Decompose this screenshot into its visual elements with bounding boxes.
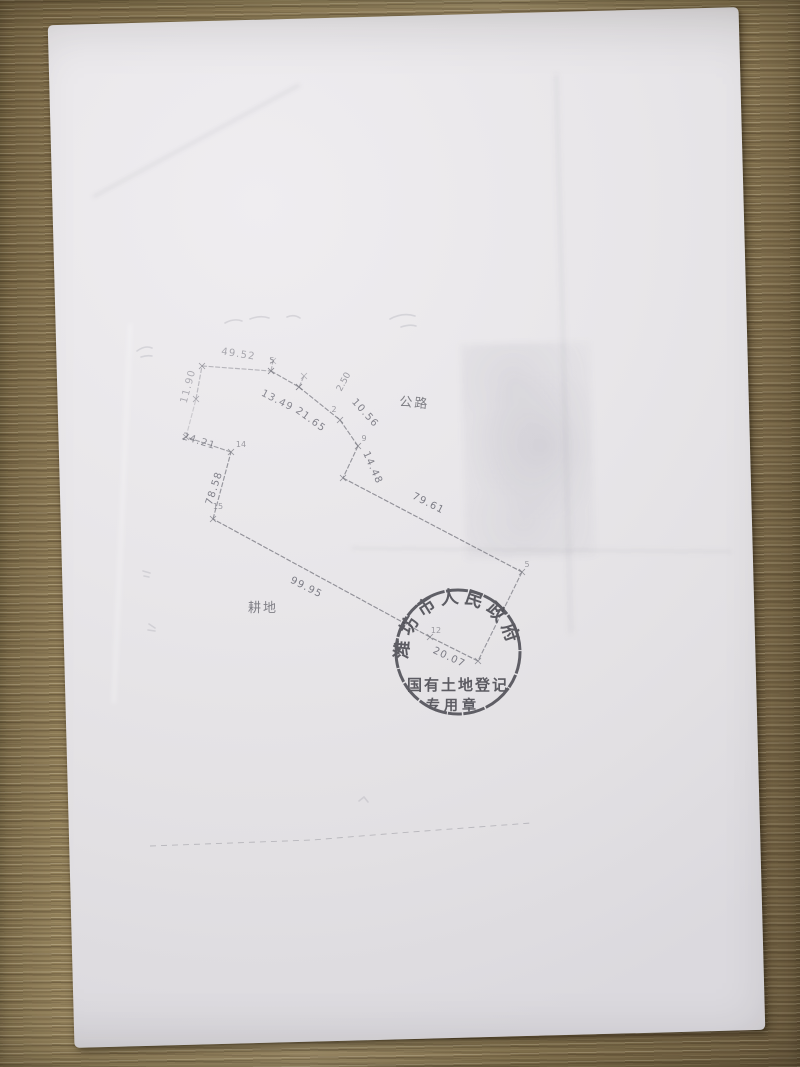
svg-text:20.07: 20.07 (431, 645, 467, 670)
stamp-row2-text: 专用章 (426, 697, 480, 713)
svg-text:21.65: 21.65 (293, 405, 327, 434)
svg-text:78.58: 78.58 (204, 470, 225, 506)
svg-text:13.49: 13.49 (259, 388, 295, 414)
area-label-road: 公路 (399, 394, 430, 412)
photo-of-document: { "sketch": { "ink_color": "#82828a", "l… (0, 0, 800, 1067)
land-parcel-sketch: 49.5213.4921.6510.5614.4879.6120.0799.95… (0, 0, 800, 1067)
svg-text:14.48: 14.48 (360, 450, 384, 486)
svg-text:15: 15 (213, 502, 223, 511)
svg-text:49.52: 49.52 (220, 346, 256, 362)
stamp-row1-text: 国有土地登记 (407, 676, 509, 694)
stamp-arc-text: 潍坊市人民政府 (390, 586, 525, 659)
svg-text:79.61: 79.61 (410, 491, 446, 517)
faint-pencil-marks (137, 315, 531, 846)
svg-text:5: 5 (524, 560, 529, 569)
svg-text:12: 12 (431, 626, 441, 635)
svg-text:2.50: 2.50 (335, 371, 353, 394)
government-stamp: 潍坊市人民政府 国有土地登记 专用章 (390, 586, 525, 714)
svg-text:24.21: 24.21 (181, 431, 217, 452)
svg-text:2: 2 (331, 405, 336, 414)
svg-text:9: 9 (361, 434, 366, 443)
svg-text:10.56: 10.56 (349, 397, 380, 430)
svg-text:5: 5 (269, 356, 274, 365)
svg-text:14: 14 (236, 440, 246, 449)
area-label-farmland: 耕地 (248, 600, 278, 615)
svg-text:99.95: 99.95 (288, 575, 324, 601)
